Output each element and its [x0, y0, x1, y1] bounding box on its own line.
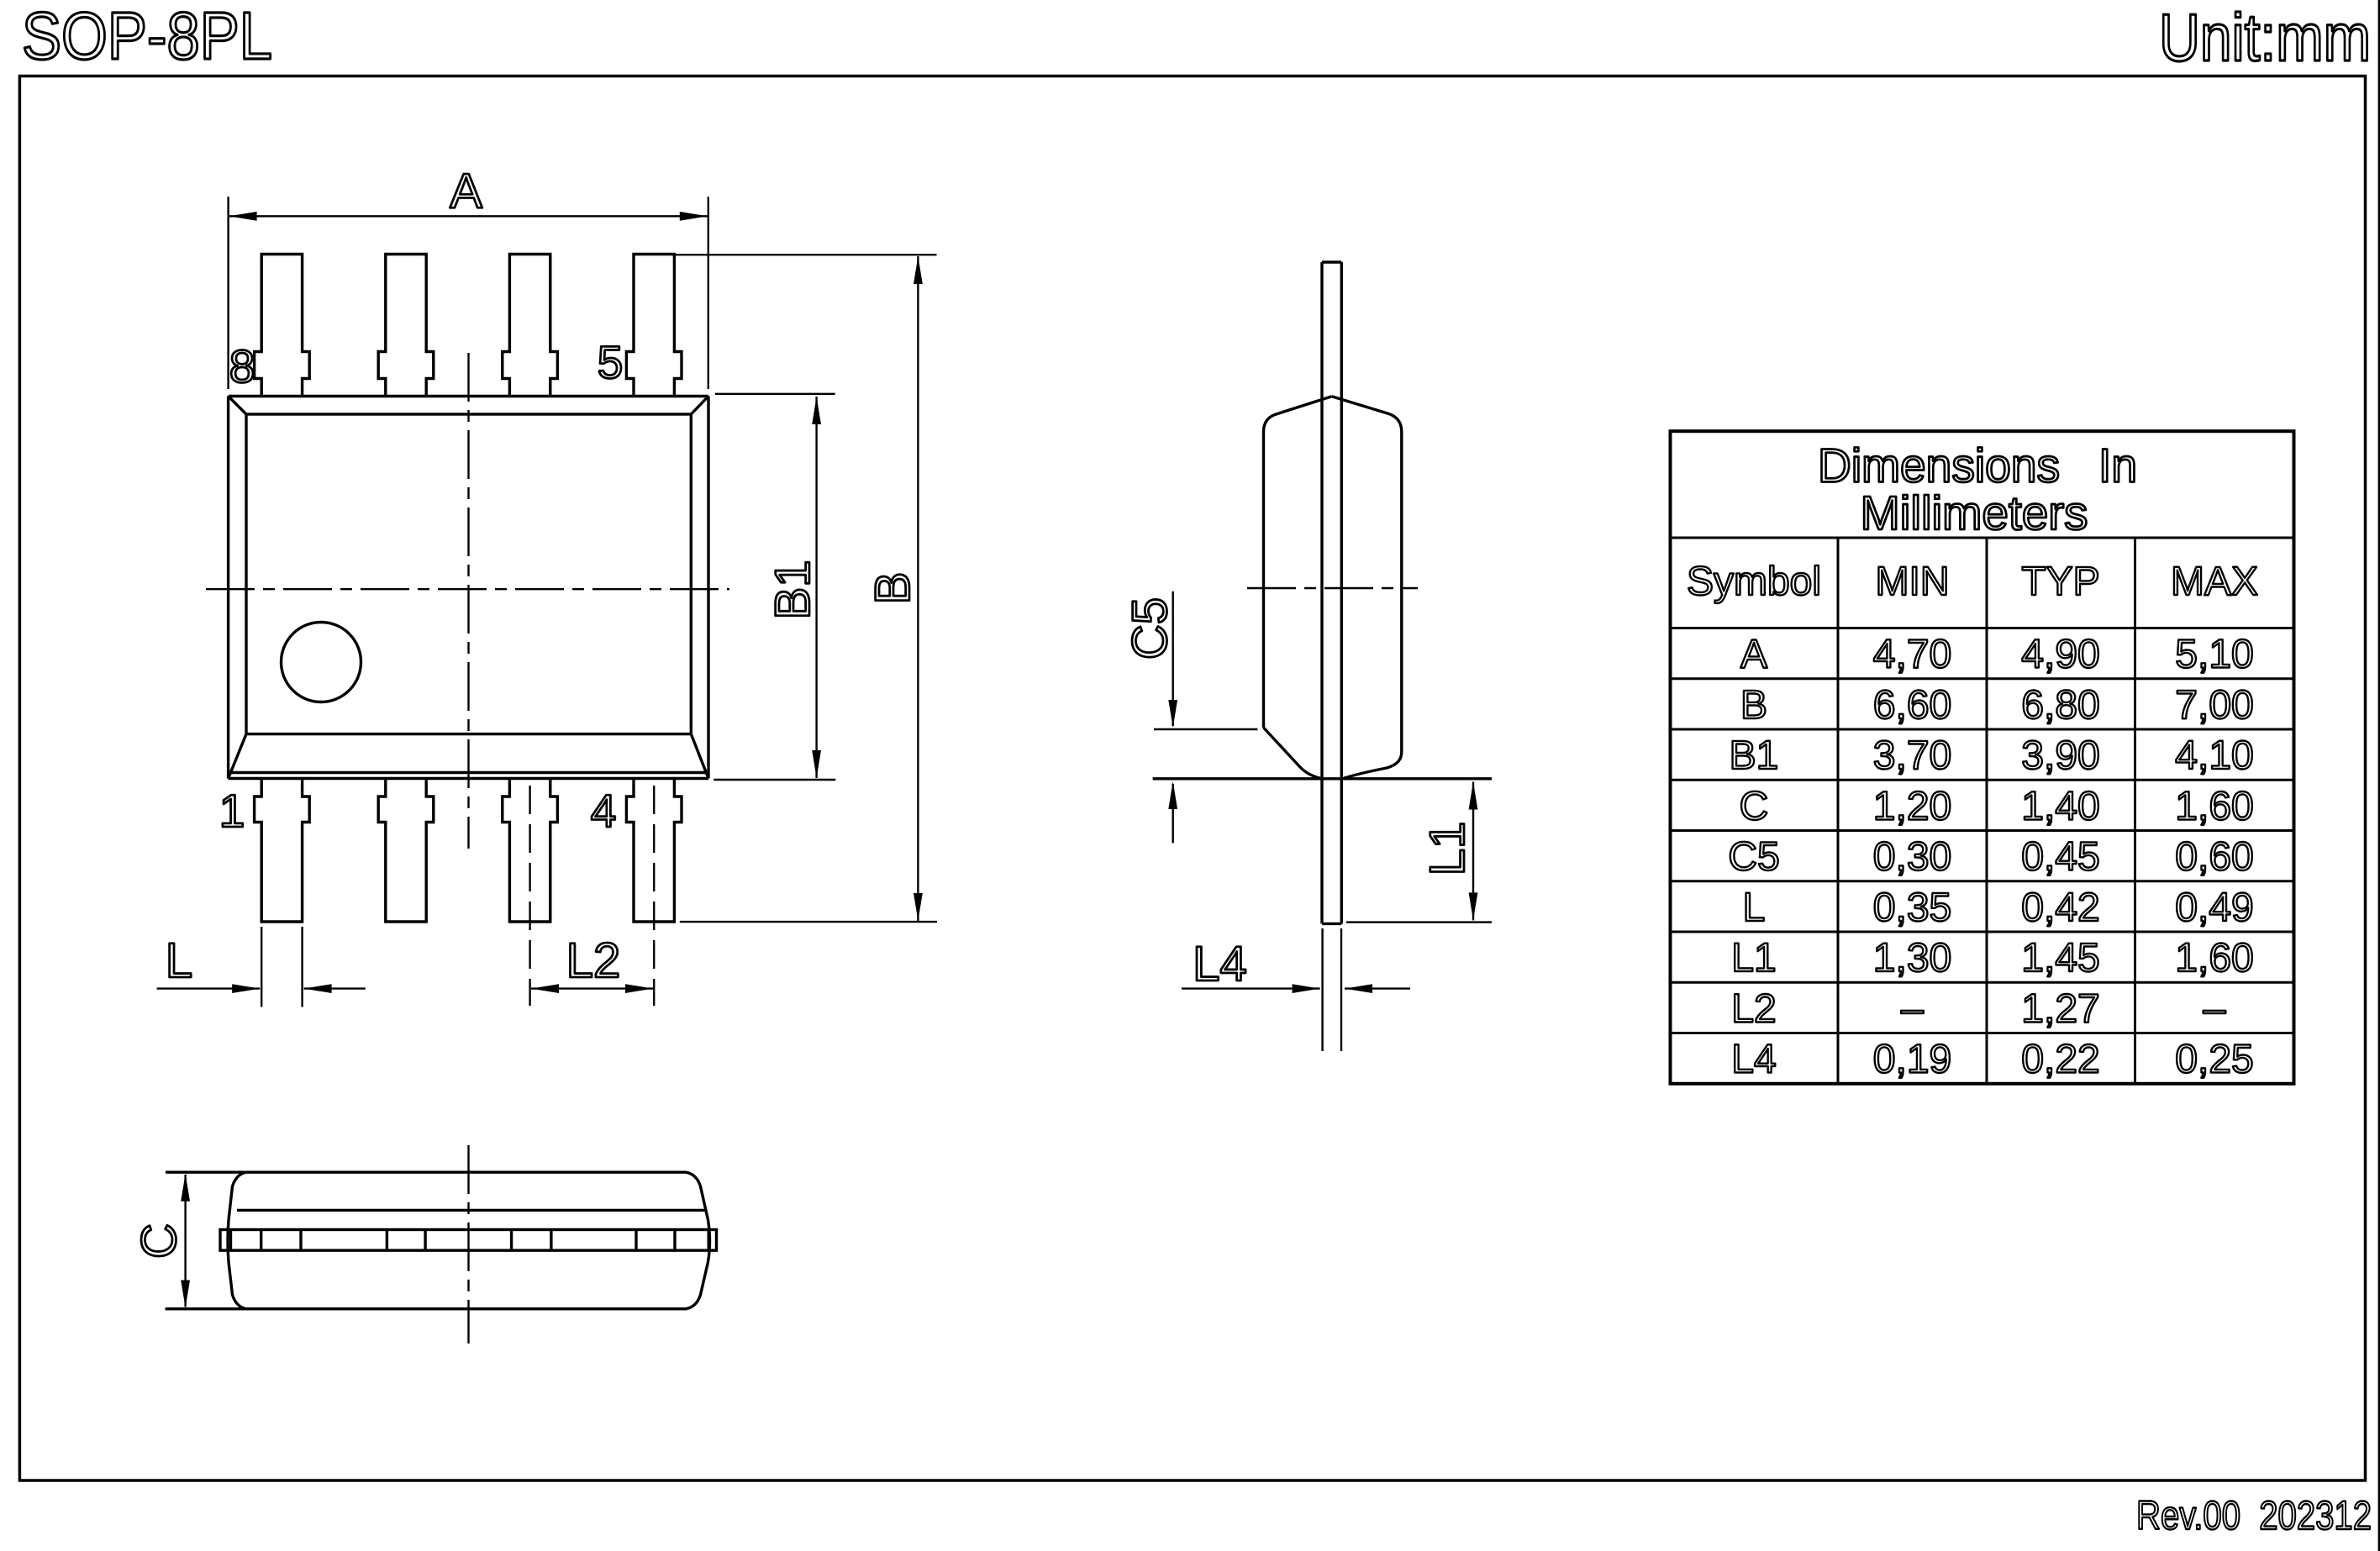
svg-text:SOP-8PL: SOP-8PL [22, 0, 272, 73]
svg-text:4: 4 [591, 785, 617, 837]
svg-text:L1: L1 [1420, 822, 1475, 876]
svg-text:–: – [2204, 986, 2226, 1031]
svg-text:8: 8 [229, 340, 255, 392]
svg-text:L1: L1 [1731, 936, 1776, 981]
svg-text:4,10: 4,10 [2175, 733, 2253, 778]
svg-text:1,27: 1,27 [2021, 986, 2099, 1031]
svg-text:MAX: MAX [2171, 560, 2258, 604]
svg-text:3,70: 3,70 [1873, 733, 1951, 778]
svg-text:L: L [166, 933, 192, 988]
svg-text:3,90: 3,90 [2021, 733, 2099, 778]
svg-text:L2: L2 [1731, 986, 1776, 1031]
svg-text:B: B [1740, 683, 1767, 728]
svg-text:4,90: 4,90 [2021, 633, 2099, 677]
svg-text:0,30: 0,30 [1873, 835, 1951, 880]
svg-text:Dimensions In: Dimensions In [1818, 439, 2137, 493]
svg-text:0,49: 0,49 [2175, 886, 2253, 930]
svg-text:C5: C5 [1123, 597, 1177, 660]
svg-text:A: A [450, 165, 482, 219]
svg-text:A: A [1740, 633, 1767, 677]
svg-text:1,30: 1,30 [1873, 936, 1951, 981]
svg-text:0,60: 0,60 [2175, 835, 2253, 880]
svg-text:6,80: 6,80 [2021, 683, 2099, 728]
svg-text:1,20: 1,20 [1873, 784, 1951, 828]
svg-text:TYP: TYP [2021, 560, 2099, 604]
svg-text:0,45: 0,45 [2021, 835, 2099, 880]
svg-text:C5: C5 [1728, 835, 1779, 880]
svg-text:0,42: 0,42 [2021, 886, 2099, 930]
svg-text:1,60: 1,60 [2175, 784, 2253, 828]
svg-text:–: – [1901, 986, 1924, 1031]
svg-text:L4: L4 [1193, 937, 1247, 991]
svg-text:C: C [1740, 784, 1769, 828]
svg-text:B1: B1 [1730, 733, 1779, 778]
svg-text:B1: B1 [766, 560, 820, 620]
svg-text:7,00: 7,00 [2175, 683, 2253, 728]
svg-text:B: B [866, 572, 920, 605]
svg-text:C: C [132, 1223, 187, 1259]
svg-text:1,45: 1,45 [2021, 936, 2099, 981]
svg-text:5: 5 [598, 336, 624, 388]
svg-text:1,60: 1,60 [2175, 936, 2253, 981]
svg-text:0,35: 0,35 [1873, 886, 1951, 930]
svg-text:Rev.00 202312: Rev.00 202312 [2136, 1494, 2372, 1538]
svg-text:0,22: 0,22 [2021, 1038, 2099, 1082]
svg-text:Millimeters: Millimeters [1861, 486, 2088, 540]
svg-text:0,19: 0,19 [1873, 1038, 1951, 1082]
svg-text:L4: L4 [1731, 1038, 1776, 1082]
svg-text:L: L [1743, 886, 1766, 930]
svg-text:5,10: 5,10 [2175, 633, 2253, 677]
svg-text:L2: L2 [566, 933, 621, 988]
svg-text:Symbol: Symbol [1687, 560, 1821, 604]
svg-text:1: 1 [219, 785, 245, 837]
svg-text:1,40: 1,40 [2021, 784, 2099, 828]
svg-text:MIN: MIN [1876, 560, 1950, 604]
svg-text:6,60: 6,60 [1873, 683, 1951, 728]
svg-text:Unit:mm: Unit:mm [2159, 0, 2371, 75]
svg-text:4,70: 4,70 [1873, 633, 1951, 677]
svg-text:0,25: 0,25 [2175, 1038, 2253, 1082]
